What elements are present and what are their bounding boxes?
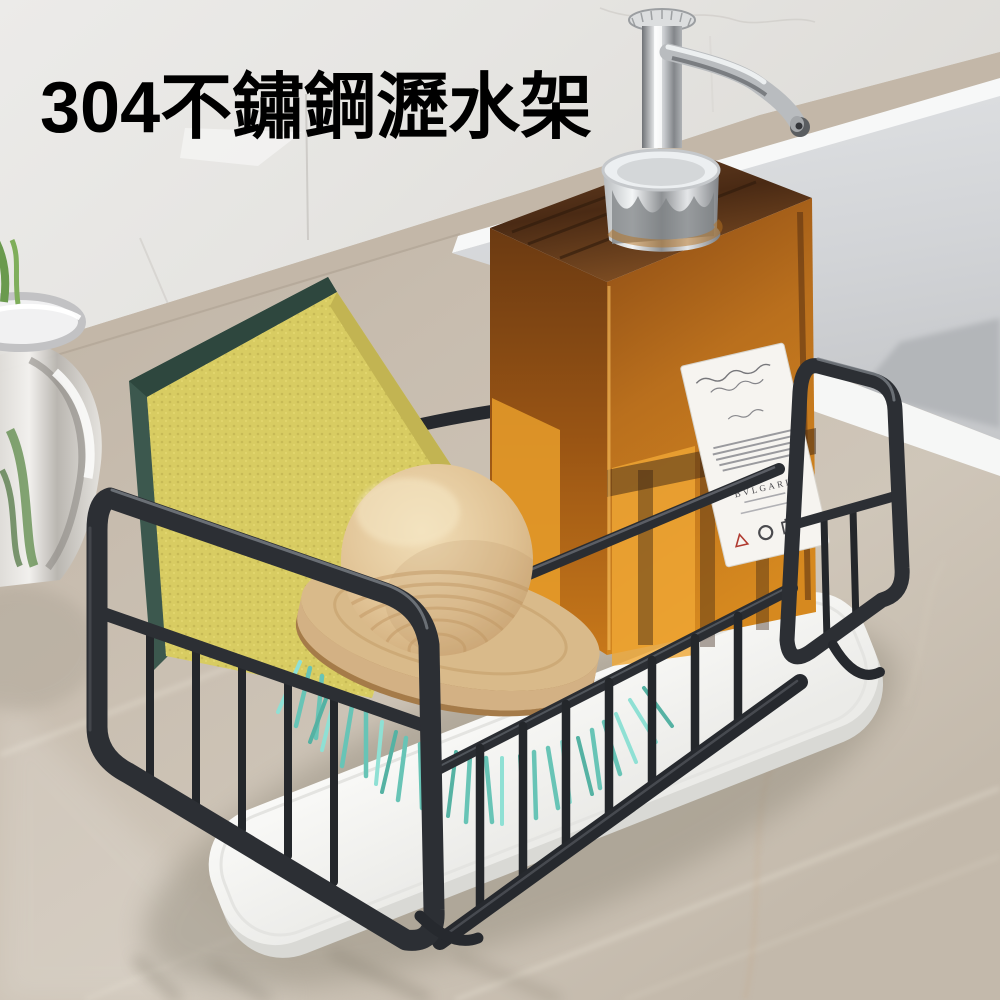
vase-rim — [0, 296, 82, 348]
pump-shaft-highlight — [654, 26, 662, 148]
collar-top-inner — [617, 158, 705, 186]
pump-collar — [603, 150, 720, 252]
dome-highlight — [356, 478, 460, 546]
glass-rail-silhouette — [638, 470, 653, 645]
product-photo: BVLGARI — [0, 0, 1000, 1000]
title-text: 304不鏽鋼瀝水架 — [40, 48, 592, 153]
spout-opening-icon — [796, 123, 803, 130]
